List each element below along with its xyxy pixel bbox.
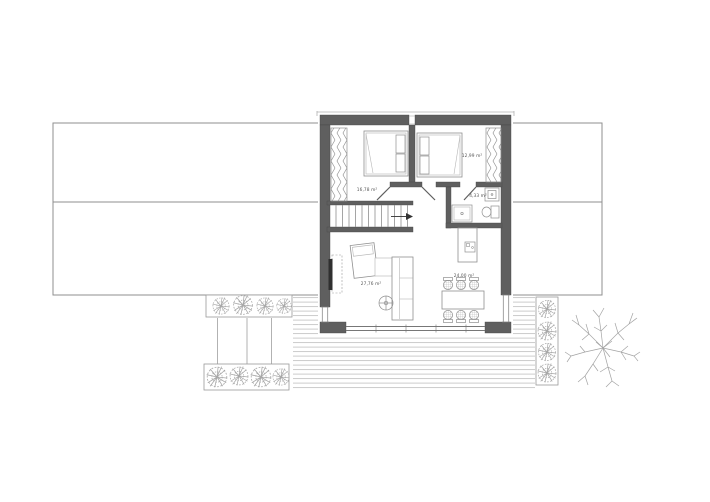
area-label-living-room: 27,76 m² bbox=[361, 281, 382, 287]
dining-table-icon bbox=[442, 291, 484, 309]
wall-corridor-center bbox=[390, 182, 422, 187]
sofa-corner-table bbox=[375, 258, 392, 276]
bed-left-icon bbox=[364, 131, 408, 176]
round-side-table-icon bbox=[379, 296, 393, 310]
chair-icon bbox=[443, 310, 452, 322]
wall-bottom-left-corner bbox=[320, 322, 346, 333]
tree-icon bbox=[565, 308, 640, 387]
chair-icon bbox=[469, 310, 478, 322]
sideboard-icon bbox=[329, 259, 333, 290]
wall-top-right bbox=[415, 115, 511, 125]
wall-bottom-right-corner bbox=[485, 322, 511, 333]
chair-icon bbox=[456, 310, 465, 322]
area-label-bedroom-right: 12,99 m² bbox=[462, 153, 483, 159]
house: 16,78 m² 12,99 m² bbox=[317, 111, 514, 335]
chaise-lounge-icon bbox=[350, 243, 378, 279]
wall-bedroom-partition bbox=[409, 125, 415, 183]
kitchen-island-icon bbox=[458, 228, 477, 262]
wall-stairs-bottom bbox=[327, 227, 413, 232]
pergola-lines bbox=[218, 318, 272, 364]
floor-plan-svg: 16,78 m² 12,99 m² bbox=[0, 0, 710, 502]
wardrobe-right-icon bbox=[486, 128, 501, 182]
wall-right bbox=[501, 125, 511, 295]
hedge-right bbox=[536, 297, 558, 385]
bed-right-icon bbox=[417, 133, 462, 177]
wall-bath-bottom bbox=[446, 223, 502, 228]
wall-bath-top-left bbox=[436, 182, 460, 187]
area-label-kitchen-dining: 24,00 m² bbox=[454, 273, 475, 279]
wardrobe-left-icon bbox=[331, 128, 347, 201]
bedroom-right: 12,99 m² bbox=[417, 128, 501, 182]
area-label-bathroom: 4,33 m² bbox=[469, 193, 487, 199]
area-label-bedroom-left: 16,78 m² bbox=[357, 187, 378, 193]
wall-stairs-top bbox=[327, 201, 413, 205]
wall-bath-top-right bbox=[476, 182, 502, 187]
wall-bath-left bbox=[446, 187, 451, 228]
chair-icon bbox=[456, 278, 465, 290]
wall-top-left bbox=[320, 115, 409, 125]
chair-icon bbox=[469, 278, 478, 290]
adjacent-roof-right bbox=[510, 123, 602, 295]
planter-left bbox=[204, 295, 292, 390]
floor-plan-canvas: 16,78 m² 12,99 m² bbox=[0, 0, 710, 502]
adjacent-roof-left bbox=[53, 123, 321, 295]
chair-icon bbox=[443, 278, 452, 290]
